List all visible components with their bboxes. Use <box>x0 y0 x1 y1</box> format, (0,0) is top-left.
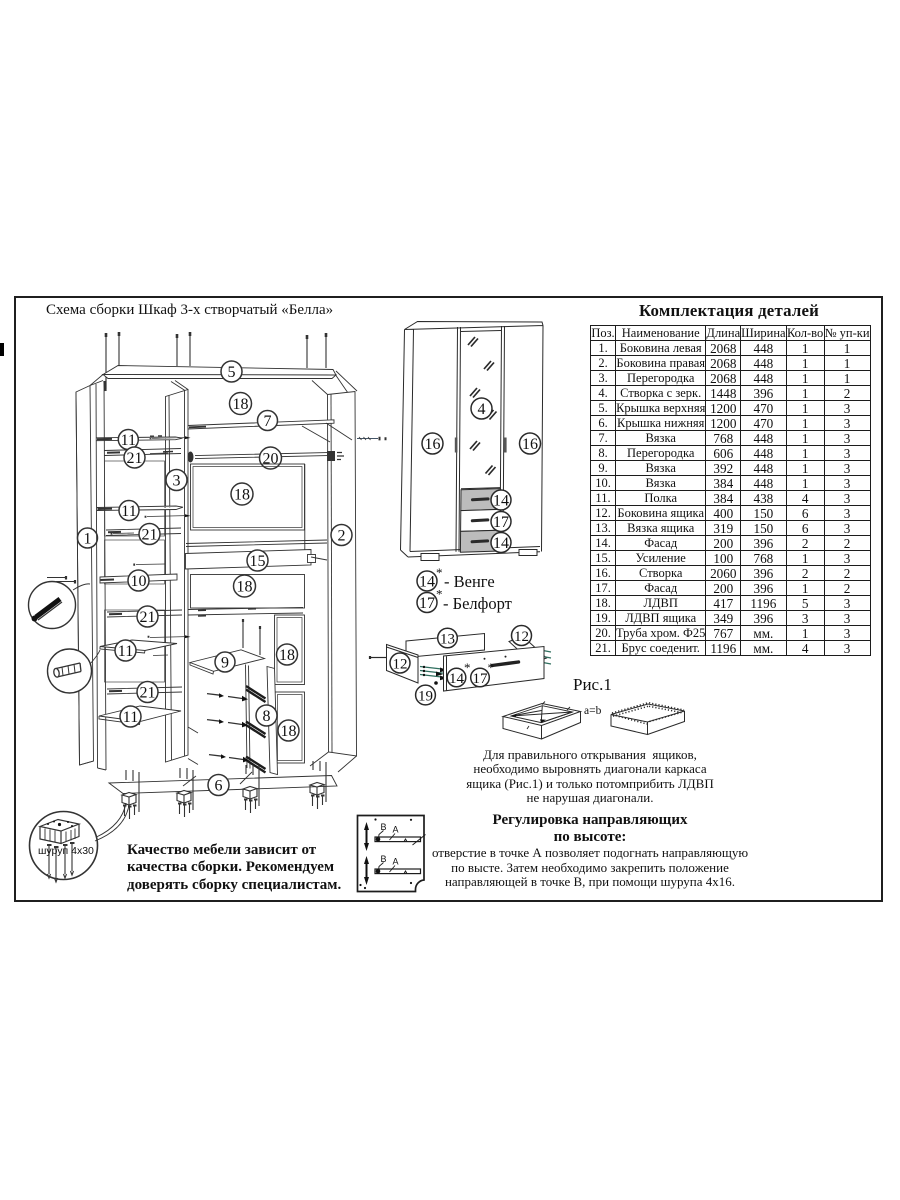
svg-text:13: 13 <box>440 632 455 648</box>
svg-text:A: A <box>393 825 399 835</box>
svg-text:1: 1 <box>84 531 92 548</box>
svg-text:12: 12 <box>514 629 529 645</box>
svg-text:*: * <box>436 565 443 580</box>
svg-text:11: 11 <box>121 503 136 520</box>
svg-text:18: 18 <box>234 487 250 504</box>
svg-text:*: * <box>436 587 443 602</box>
svg-text:21: 21 <box>127 450 143 467</box>
svg-text:18: 18 <box>279 647 295 664</box>
svg-text:*: * <box>488 660 495 675</box>
svg-text:9: 9 <box>221 655 229 672</box>
svg-text:- Белфорт: - Белфорт <box>443 594 512 613</box>
svg-text:7: 7 <box>264 413 272 430</box>
svg-text:14: 14 <box>449 671 465 687</box>
svg-text:*: * <box>464 660 471 675</box>
svg-text:- Венге: - Венге <box>444 572 495 591</box>
svg-text:3: 3 <box>173 473 181 490</box>
svg-text:B: B <box>381 822 387 832</box>
svg-text:A: A <box>393 857 399 867</box>
svg-text:14: 14 <box>493 535 509 552</box>
svg-text:8: 8 <box>263 708 271 725</box>
svg-text:5: 5 <box>228 364 236 381</box>
svg-text:14: 14 <box>493 493 509 510</box>
svg-text:6: 6 <box>215 778 223 795</box>
svg-text:4: 4 <box>478 401 486 418</box>
svg-text:16: 16 <box>522 436 538 453</box>
svg-text:15: 15 <box>250 553 266 570</box>
svg-text:18: 18 <box>281 723 297 740</box>
svg-text:21: 21 <box>140 609 156 626</box>
svg-text:20: 20 <box>263 451 279 468</box>
svg-text:11: 11 <box>123 709 138 726</box>
svg-text:19: 19 <box>418 689 433 705</box>
svg-text:17: 17 <box>419 595 435 612</box>
svg-text:21: 21 <box>140 685 156 702</box>
svg-text:14: 14 <box>419 574 435 591</box>
svg-text:18: 18 <box>233 396 249 413</box>
svg-text:16: 16 <box>425 436 441 453</box>
svg-text:шуруп 4х30: шуруп 4х30 <box>38 845 94 857</box>
svg-text:10: 10 <box>131 573 147 590</box>
svg-text:2: 2 <box>338 528 346 545</box>
svg-text:11: 11 <box>118 643 133 660</box>
svg-text:12: 12 <box>393 657 408 673</box>
svg-text:B: B <box>381 854 387 864</box>
svg-text:17: 17 <box>493 514 509 531</box>
svg-text:18: 18 <box>237 579 253 596</box>
svg-text:17: 17 <box>473 671 489 687</box>
svg-text:21: 21 <box>142 527 158 544</box>
svg-text:a=b: a=b <box>584 705 602 717</box>
